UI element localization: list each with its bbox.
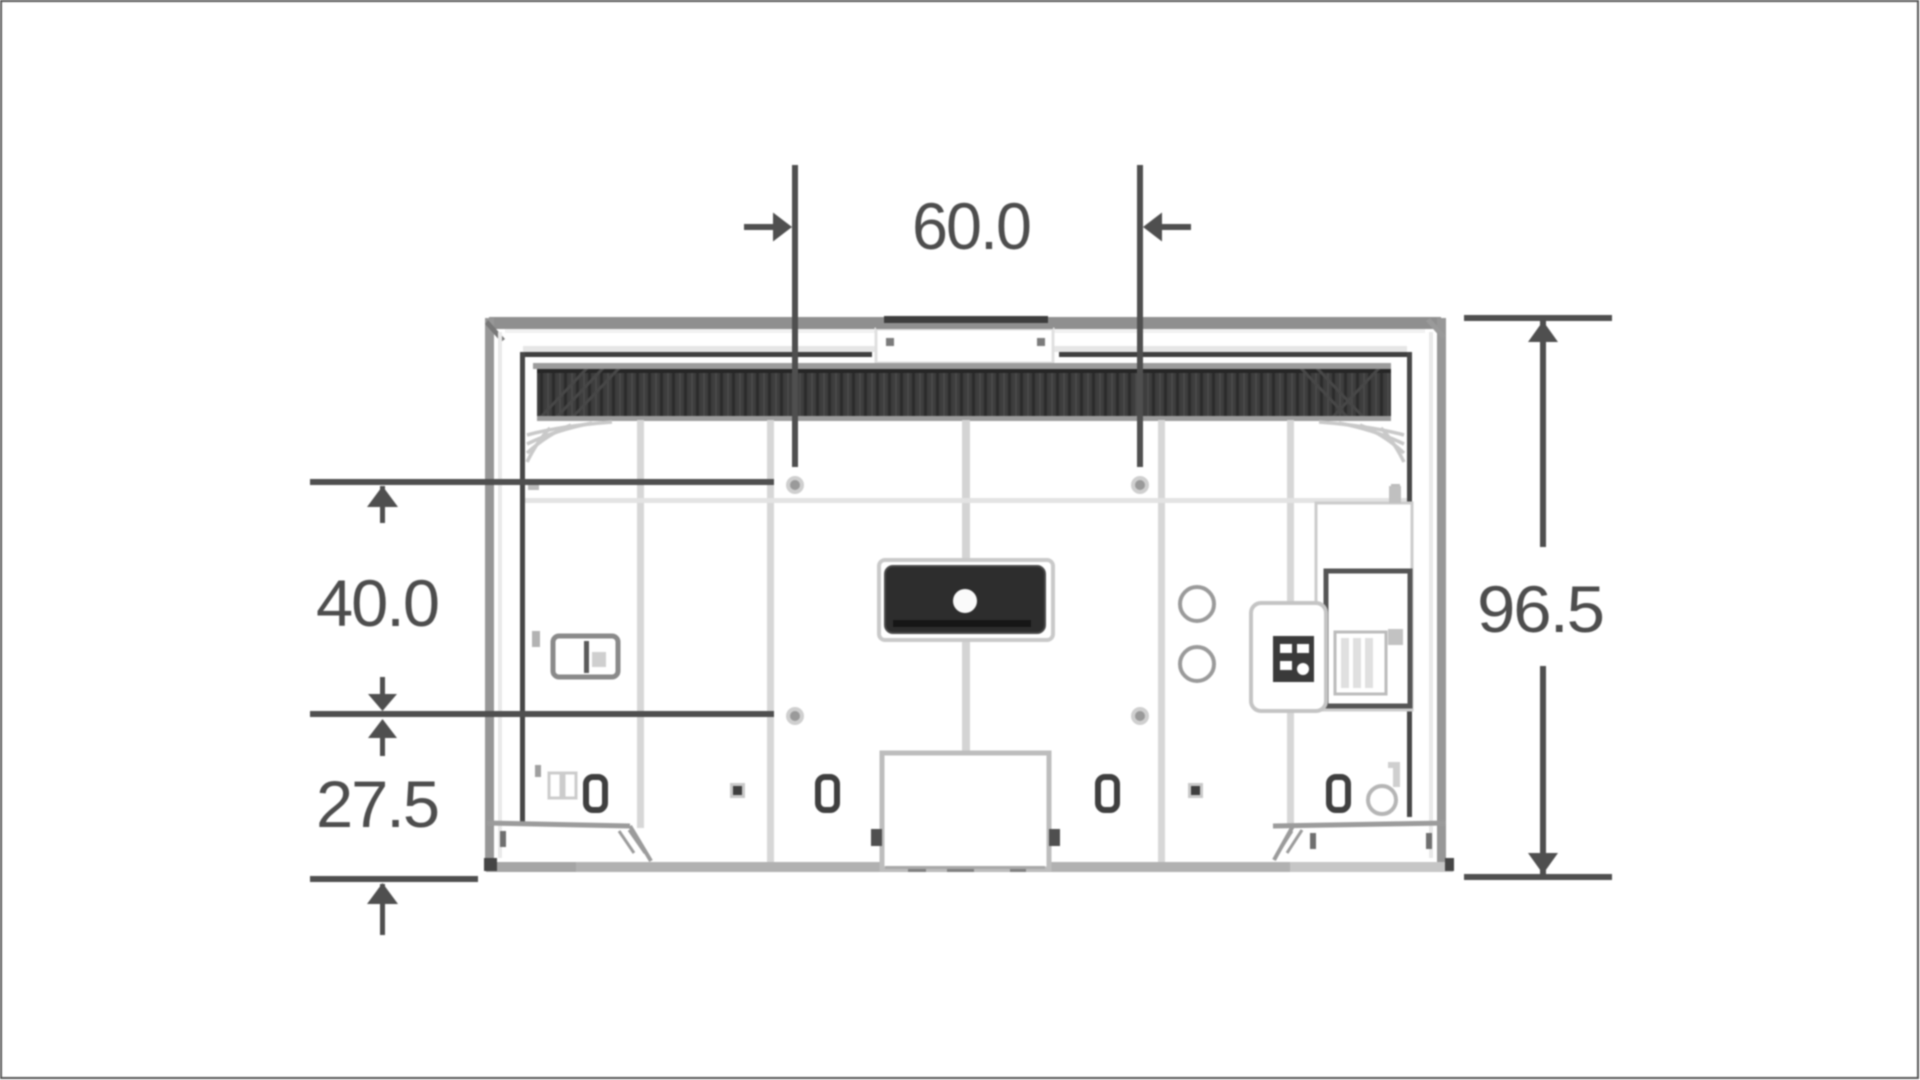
svg-text:40.0: 40.0 — [316, 566, 438, 640]
svg-text:60.0: 60.0 — [912, 189, 1030, 263]
svg-text:96.5: 96.5 — [1477, 572, 1603, 646]
svg-text:27.5: 27.5 — [316, 767, 438, 841]
